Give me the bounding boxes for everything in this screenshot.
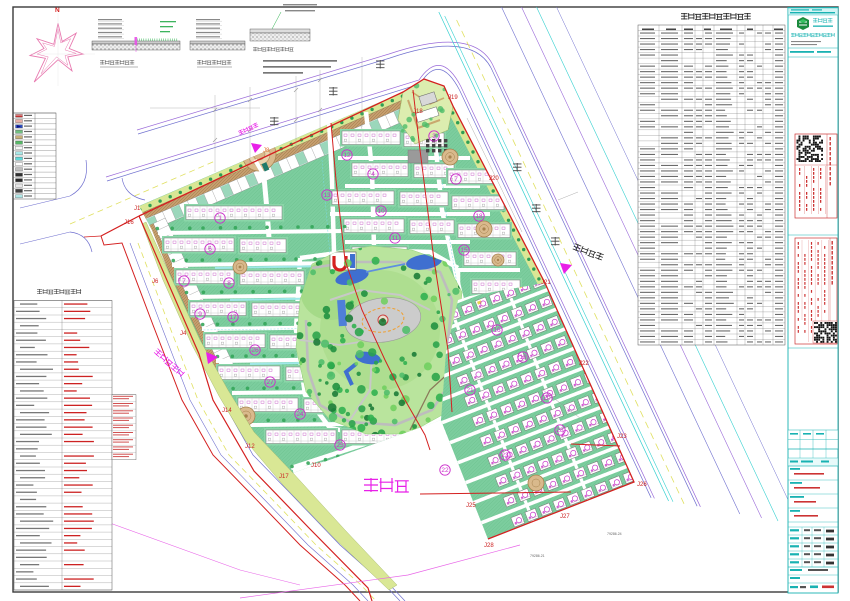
svg-text:25: 25 — [336, 442, 344, 449]
svg-text:15: 15 — [460, 247, 468, 254]
svg-text:11: 11 — [392, 235, 399, 242]
svg-text:J20: J20 — [489, 176, 499, 182]
svg-text:J28: J28 — [484, 543, 494, 549]
svg-text:J26: J26 — [637, 482, 647, 488]
svg-text:J14: J14 — [222, 408, 232, 414]
svg-text:J6: J6 — [152, 279, 159, 285]
svg-text:J19: J19 — [448, 95, 458, 101]
svg-text:10: 10 — [377, 208, 385, 215]
svg-text:18: 18 — [475, 213, 483, 220]
svg-text:J4: J4 — [180, 331, 187, 337]
svg-text:J16: J16 — [124, 220, 134, 226]
svg-text:21: 21 — [466, 387, 474, 394]
svg-text:J1: J1 — [134, 206, 141, 212]
svg-text:28: 28 — [556, 427, 564, 434]
svg-text:79286.24: 79286.24 — [607, 532, 622, 536]
svg-text:20: 20 — [543, 395, 551, 402]
svg-text:J17: J17 — [279, 474, 289, 480]
svg-text:24: 24 — [296, 411, 304, 418]
svg-text:J8: J8 — [263, 148, 270, 154]
svg-text:79286.21: 79286.21 — [530, 554, 545, 558]
svg-text:J27: J27 — [560, 514, 570, 520]
svg-text:1: 1 — [218, 215, 222, 222]
svg-text:N: N — [55, 7, 60, 14]
svg-text:19: 19 — [519, 354, 527, 361]
svg-text:9: 9 — [198, 311, 202, 318]
svg-text:16: 16 — [493, 327, 501, 334]
svg-text:J25: J25 — [466, 503, 476, 509]
svg-text:J21: J21 — [541, 280, 551, 286]
svg-text:26: 26 — [251, 347, 259, 354]
svg-text:J12: J12 — [245, 444, 255, 450]
svg-text:17: 17 — [229, 314, 237, 321]
svg-text:J18: J18 — [413, 109, 423, 115]
svg-text:12: 12 — [343, 152, 351, 159]
svg-text:27: 27 — [266, 379, 274, 386]
svg-text:7: 7 — [454, 176, 458, 183]
svg-text:8: 8 — [227, 280, 231, 287]
svg-text:4: 4 — [371, 171, 375, 178]
svg-text:6: 6 — [208, 246, 212, 253]
svg-text:J10: J10 — [311, 463, 321, 469]
svg-text:J23: J23 — [617, 434, 627, 440]
svg-text:23: 23 — [501, 452, 509, 459]
svg-text:22: 22 — [441, 467, 449, 474]
svg-text:J22: J22 — [579, 361, 589, 367]
svg-text:13: 13 — [323, 192, 331, 199]
svg-text:7: 7 — [182, 278, 186, 285]
svg-text:3: 3 — [432, 133, 436, 140]
